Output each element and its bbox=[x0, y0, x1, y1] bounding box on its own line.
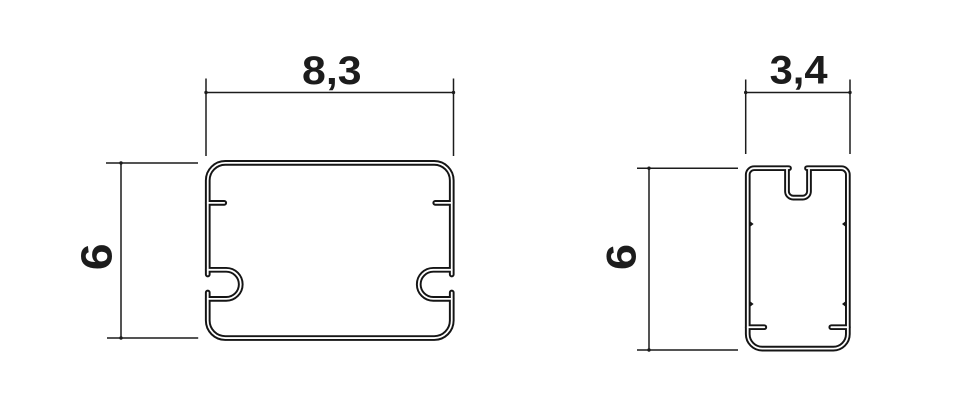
svg-text:6: 6 bbox=[72, 243, 121, 270]
svg-text:3,4: 3,4 bbox=[770, 49, 829, 93]
svg-text:6: 6 bbox=[599, 244, 645, 270]
svg-text:8,3: 8,3 bbox=[302, 49, 362, 93]
